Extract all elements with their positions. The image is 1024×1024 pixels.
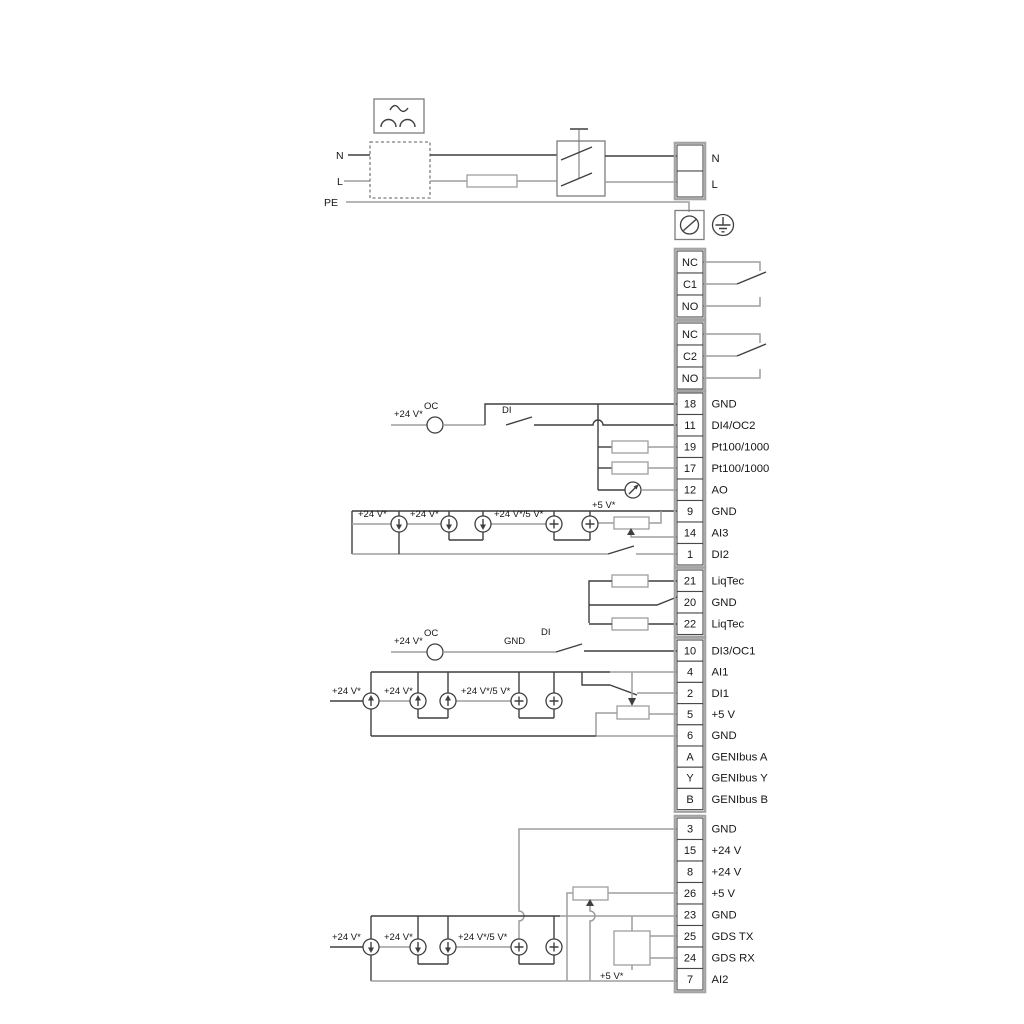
wire-pe (346, 202, 689, 212)
terminal-label-GND: GND (712, 824, 737, 836)
terminal-id-C1: C1 (683, 279, 697, 291)
label-24v-b: +24 V* (410, 509, 439, 520)
relay2-contact (703, 334, 766, 378)
label-24v5v-b: +24 V*/5 V* (461, 686, 511, 697)
potentiometer-icon (614, 517, 649, 529)
terminal-label-LiqTec: LiqTec (712, 619, 745, 631)
terminal-label-AI3: AI3 (712, 528, 729, 540)
terminal-id-7: 7 (687, 974, 693, 986)
source-24v-down-icon (410, 939, 426, 955)
mains-switch-icon (557, 129, 605, 196)
pt100-sensor-icon-2 (612, 462, 648, 474)
label-5v-gds: +5 V* (600, 971, 624, 982)
terminal-cell-L (677, 171, 703, 197)
gds-sensor-box (614, 931, 650, 965)
terminal-id-NO: NO (682, 373, 699, 385)
pot-wiper-arrow-2 (628, 698, 636, 706)
ai2-gds-wiring: +24 V* +24 V* +24 V*/5 V* +5 V* (330, 829, 677, 982)
source-24v-up-icon (440, 693, 456, 709)
source-plus-icon (546, 693, 562, 709)
source-plus-icon (546, 516, 562, 532)
di3-oc1-wiring: +24 V* OC GND DI (391, 627, 677, 660)
terminal-id-10: 10 (684, 645, 696, 657)
potentiometer-icon-2 (617, 706, 649, 719)
source-24v-up-icon (363, 693, 379, 709)
terminal-label-N: N (712, 153, 720, 165)
label-l: L (337, 176, 343, 188)
label-oc2: OC (424, 401, 438, 412)
terminal-id-C2: C2 (683, 351, 697, 363)
terminal-label-AO: AO (712, 485, 729, 497)
label-24v-a: +24 V* (358, 509, 387, 520)
terminal-id-20: 20 (684, 597, 696, 609)
terminal-strip: NLNCC1NONCC2NO18GND11DI4/OC219Pt100/1000… (675, 143, 769, 992)
earth-icon (713, 215, 734, 236)
terminal-id-23: 23 (684, 910, 696, 922)
label-oc1: OC (424, 628, 438, 639)
terminal-group-mains-output: NL (675, 143, 720, 199)
terminal-group-io-top: 18GND11DI4/OC219Pt100/100017Pt100/100012… (675, 391, 769, 567)
open-collector-icon (427, 417, 443, 433)
di4-oc2-wiring: +24 V* OC DI (391, 401, 677, 433)
relay1-contact (703, 262, 766, 306)
terminal-id-26: 26 (684, 888, 696, 900)
terminal-label-LiqTec: LiqTec (712, 576, 745, 588)
terminal-label-GND: GND (712, 597, 737, 609)
terminal-label-Pt100/1000: Pt100/1000 (712, 463, 770, 475)
source-24v-down-icon (441, 516, 457, 532)
terminal-group-relay-1: NCC1NO (675, 249, 705, 319)
terminal-label-DI3/OC1: DI3/OC1 (712, 645, 756, 657)
source-24v-up-icon (410, 693, 426, 709)
terminal-id-25: 25 (684, 931, 696, 943)
ai3-di2-wiring: +24 V* +24 V* +24 V*/5 V* +5 V* (352, 500, 677, 554)
label-n: N (336, 150, 344, 162)
liqtec-sensor-icon (612, 575, 648, 587)
terminal-label-+24 V: +24 V (712, 867, 742, 879)
terminal-label-GENIbus A: GENIbus A (712, 751, 768, 763)
terminal-id-5: 5 (687, 709, 693, 721)
label-24v-e: +24 V* (332, 932, 361, 943)
terminal-id-2: 2 (687, 688, 693, 700)
terminal-label-DI2: DI2 (712, 549, 730, 561)
terminal-label-GENIbus Y: GENIbus Y (712, 773, 769, 785)
terminal-id-14: 14 (684, 528, 696, 540)
terminal-id-21: 21 (684, 576, 696, 588)
terminal-id-NO: NO (682, 301, 699, 313)
label-24v-c: +24 V* (332, 686, 361, 697)
terminal-id-22: 22 (684, 619, 696, 631)
terminal-id-6: 6 (687, 730, 693, 742)
label-pe: PE (324, 197, 338, 209)
terminal-label-AI2: AI2 (712, 974, 729, 986)
label-24v5v-a: +24 V*/5 V* (494, 509, 544, 520)
terminal-label-DI4/OC2: DI4/OC2 (712, 420, 756, 432)
terminal-id-12: 12 (684, 485, 696, 497)
terminal-label-GDS RX: GDS RX (712, 953, 756, 965)
terminal-id-11: 11 (684, 420, 695, 432)
label-gnd-mid: GND (504, 636, 525, 647)
label-di4: DI (502, 405, 512, 416)
wiring-diagram: N L PE (0, 0, 1024, 1024)
open-collector-icon-2 (427, 644, 443, 660)
terminal-id-17: 17 (684, 463, 696, 475)
terminal-id-1: 1 (687, 549, 693, 561)
liqtec-sensor-icon-2 (612, 618, 648, 630)
terminal-id-3: 3 (687, 824, 693, 836)
label-24v-oc2: +24 V* (394, 409, 423, 420)
supply-unit-box (370, 142, 430, 198)
terminal-id-19: 19 (684, 442, 696, 454)
source-plus-icon (511, 693, 527, 709)
liqtec-wiring (589, 575, 677, 630)
source-24v-down-icon (363, 939, 379, 955)
source-plus-icon (582, 516, 598, 532)
terminal-id-A: A (686, 751, 694, 763)
di1-switch-icon (610, 685, 637, 695)
terminal-group-relay-2: NCC2NO (675, 321, 705, 391)
terminal-cell-N (677, 145, 703, 171)
mains-section: N L PE (324, 99, 734, 240)
terminal-label-GND: GND (712, 730, 737, 742)
label-di3: DI (541, 627, 551, 638)
di3-switch-icon (556, 644, 582, 652)
source-24v-down-icon (391, 516, 407, 532)
label-24v-f: +24 V* (384, 932, 413, 943)
terminal-label-GND: GND (712, 910, 737, 922)
terminal-id-4: 4 (687, 667, 693, 679)
terminal-id-B: B (686, 794, 693, 806)
terminal-group-liqtec: 21LiqTec20GND22LiqTec (675, 568, 745, 637)
pt100-sensor-icon (612, 441, 648, 453)
label-24v-d: +24 V* (384, 686, 413, 697)
di4-switch-icon (506, 417, 532, 425)
source-24v-down-icon (475, 516, 491, 532)
meter-icon (625, 482, 641, 498)
terminal-id-18: 18 (684, 399, 696, 411)
terminal-group-io-mid: 10DI3/OC14AI12DI15+5 V6GNDAGENIbus AYGEN… (675, 638, 768, 812)
terminal-label-+24 V: +24 V (712, 845, 742, 857)
terminal-id-NC: NC (682, 257, 698, 269)
terminal-label-L: L (712, 179, 718, 191)
terminal-label-+5 V: +5 V (712, 709, 736, 721)
label-5v-a: +5 V* (592, 500, 616, 511)
terminal-group-io-bottom: 3GND15+24 V8+24 V26+5 V23GND25GDS TX24GD… (675, 816, 755, 992)
terminal-label-GDS TX: GDS TX (712, 931, 754, 943)
terminal-id-NC: NC (682, 329, 698, 341)
terminal-label-Pt100/1000: Pt100/1000 (712, 442, 770, 454)
terminal-id-Y: Y (686, 773, 694, 785)
pt100-ao-wiring (598, 404, 677, 498)
ai1-di1-wiring: +24 V* +24 V* +24 V*/5 V* (330, 672, 677, 736)
ac-supply-icon (374, 99, 424, 133)
terminal-label-GND: GND (712, 506, 737, 518)
label-24v-oc1: +24 V* (394, 636, 423, 647)
terminal-id-8: 8 (687, 867, 693, 879)
source-plus-icon (546, 939, 562, 955)
terminal-label-AI1: AI1 (712, 667, 729, 679)
terminal-label-GENIbus B: GENIbus B (712, 794, 769, 806)
fuse-icon (467, 175, 517, 187)
source-plus-icon (511, 939, 527, 955)
terminal-label-DI1: DI1 (712, 688, 730, 700)
terminal-id-24: 24 (684, 953, 696, 965)
terminal-label-GND: GND (712, 399, 737, 411)
potentiometer-icon-3 (573, 887, 608, 900)
terminal-id-9: 9 (687, 506, 693, 518)
pe-terminal (675, 211, 704, 240)
terminal-id-15: 15 (684, 845, 696, 857)
terminal-label-+5 V: +5 V (712, 888, 736, 900)
label-24v5v-c: +24 V*/5 V* (458, 932, 508, 943)
di2-switch-icon (608, 546, 634, 554)
source-24v-down-icon (440, 939, 456, 955)
wire-gnd3-feed (519, 829, 677, 939)
